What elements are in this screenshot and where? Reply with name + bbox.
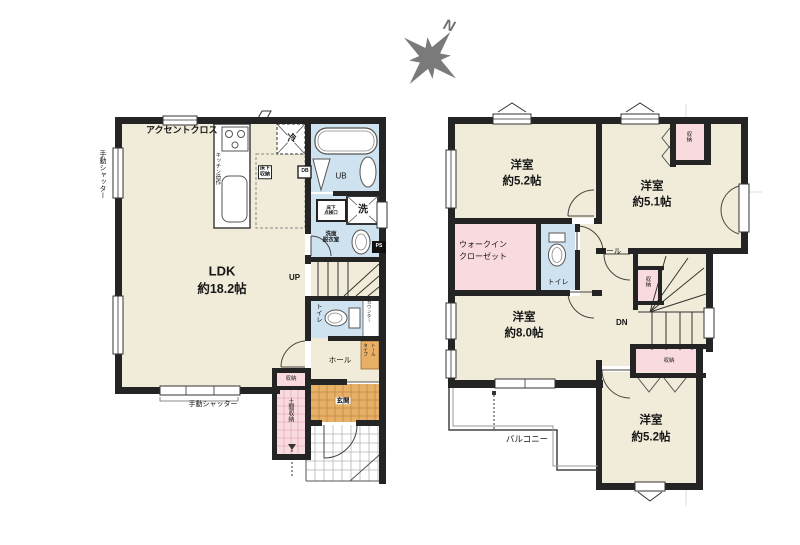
laundry-label: 洗 xyxy=(357,204,369,216)
compass-rose-icon xyxy=(384,12,477,105)
underfloor-storage-label: 床下 収納 xyxy=(258,165,272,179)
storage-top-label: 収納 xyxy=(685,131,691,142)
room-b-name-label: 洋室 xyxy=(641,180,664,193)
room-d-name-label: 洋室 xyxy=(640,414,663,427)
accent-cross-label: アクセントクロス xyxy=(146,125,218,135)
db-label: DB xyxy=(301,169,308,175)
room-b-size-label: 約5.1帖 xyxy=(633,196,672,209)
room-ldk xyxy=(120,122,305,388)
shutter-bottom-label: 手動シャッター xyxy=(189,401,238,409)
balcony-label: バルコニー xyxy=(506,435,548,445)
kitchen-label: キッチン造作 xyxy=(214,152,220,185)
storage-top xyxy=(676,124,704,162)
toilet-icon-2f xyxy=(549,233,566,266)
doma-storage-label: 土間収納 xyxy=(286,398,293,422)
room-d-size-label: 約5.2帖 xyxy=(632,431,671,444)
ldk-size-label: 約18.2帖 xyxy=(197,282,246,296)
floor1-plan xyxy=(113,111,387,484)
shutter-left-label: 手動シャッター xyxy=(98,150,106,199)
floorplan-drawing xyxy=(0,0,800,545)
unit-bath-label: UB xyxy=(335,171,346,180)
entrance-label: 玄関 xyxy=(336,397,351,404)
counter-label: カウンター xyxy=(367,300,372,323)
floorplan-page: N 手動シャッター アクセントクロス キッチン造作 冷 床下 収納 DB UB … xyxy=(0,0,800,545)
toilet-icon-1f xyxy=(325,308,360,328)
hall-2f-label: ホール xyxy=(599,248,622,257)
dn-label: DN xyxy=(616,318,628,327)
stairs-up-area xyxy=(311,260,379,297)
fridge-label: 冷 xyxy=(287,133,296,143)
balcony-outline xyxy=(449,388,598,470)
storage-1f-label: 収納 xyxy=(285,376,296,382)
tall-cabinet-label: トール タイプ xyxy=(362,343,377,357)
room-a-name-label: 洋室 xyxy=(511,159,534,172)
floor2-plan xyxy=(446,103,749,501)
porch-tiles xyxy=(306,425,386,481)
room-a-size-label: 約5.2帖 xyxy=(503,175,542,188)
washbasin-icon xyxy=(352,230,370,254)
toilet-1f-label: トイレ xyxy=(314,303,321,323)
wic-label: ウォークイン クローゼット xyxy=(459,239,507,262)
ldk-name-label: LDK xyxy=(209,265,236,280)
storage-low-label: 収納 xyxy=(663,358,674,364)
room-c-size-label: 約8.0帖 xyxy=(505,327,544,340)
room-c-name-label: 洋室 xyxy=(513,311,536,324)
inspection-hatch-label: 床下 点検口 xyxy=(324,205,338,215)
pipe-space-label: PS xyxy=(376,244,383,250)
hall-1f-label: ホール xyxy=(329,357,352,366)
storage-mid-label: 収納 xyxy=(644,276,650,287)
toilet-2f-label: トイレ xyxy=(548,279,569,287)
up-label: UP xyxy=(289,273,300,282)
washroom-label: 洗面 脱衣室 xyxy=(323,232,340,245)
